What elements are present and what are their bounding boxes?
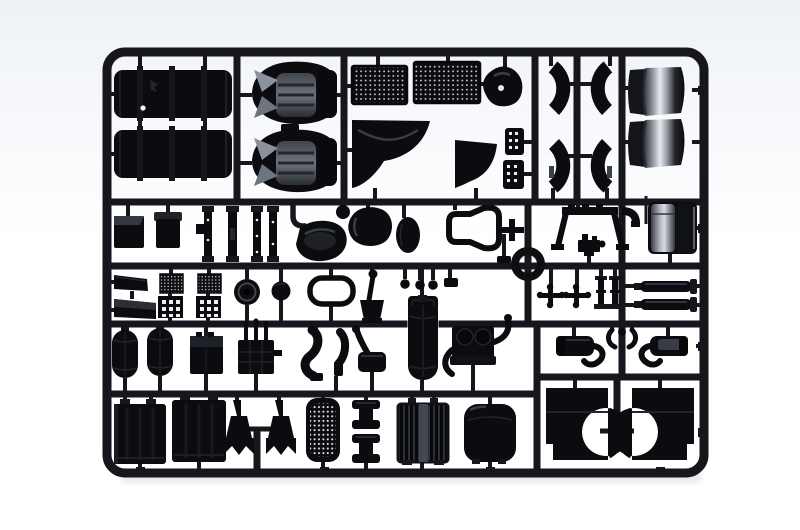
control-knobs: control-knob xyxy=(400,278,458,290)
wheel-rim-2: wheel-rim xyxy=(352,434,380,463)
hub-cap: hub-cap xyxy=(272,282,291,301)
mesh-grille-small: mesh-grille-panel xyxy=(352,66,407,104)
step-plates: step-plate xyxy=(158,274,221,318)
wind-deflector-2: wind-deflector xyxy=(628,119,685,168)
spring-hanger-2: spring-hanger xyxy=(266,400,296,455)
pedal-plate-1: pedal-plate xyxy=(505,128,524,155)
air-horn-cover: air-horn-cover xyxy=(293,202,350,261)
lever-slats: lever-slat xyxy=(196,206,279,262)
mud-flap-2: mud-flap xyxy=(114,299,156,319)
sprue-photo: Black injection-molded plastic model-kit… xyxy=(0,0,800,530)
air-filter-box: air-filter-box xyxy=(646,196,697,254)
muffler-left: muffler xyxy=(556,336,603,365)
exhaust-pipe-1: exhaust-pipe xyxy=(305,330,323,381)
intake-grille: intake-grille xyxy=(306,398,340,462)
exhaust-pipe-2: exhaust-pipe xyxy=(334,332,345,376)
gear-lever: gear-lever xyxy=(360,270,384,324)
cab-corner-panel: cab-corner-panel xyxy=(483,66,522,106)
ribbed-radiator: ribbed-radiator xyxy=(398,398,448,465)
radiator-panel-2: radiator-panel xyxy=(172,395,226,462)
storage-box: storage-box xyxy=(464,404,516,464)
equipment-box-1: equipment-box xyxy=(114,216,144,248)
air-tank-1: air-tank xyxy=(112,324,138,378)
brake-drum: brake-drum xyxy=(234,279,260,305)
fuel-tank-lower: fuel-tank xyxy=(114,126,232,181)
pedal-plate-2: pedal-plate xyxy=(503,160,524,189)
seat-bracket xyxy=(281,124,299,133)
fuel-tank-upper: fuel-tank xyxy=(114,66,232,121)
seat-back-frame: seat-back-frame xyxy=(449,208,524,249)
mesh-grille-large: mesh-grille-panel xyxy=(414,62,480,103)
mud-flap-1: mud-flap xyxy=(114,275,148,291)
brake-pedal: brake-pedal xyxy=(352,325,386,372)
chassis-stanchions: chassis-stanchion xyxy=(594,276,622,309)
fender-small: fender-panel xyxy=(455,140,497,188)
window-gasket: window-gasket xyxy=(310,278,353,304)
compressor-unit: compressor-unit xyxy=(578,234,606,256)
fender-large: fender-panel xyxy=(352,120,430,188)
exhaust-stack-1: exhaust-stack xyxy=(634,279,697,294)
cab-seat-top: cab-seat xyxy=(252,62,337,124)
air-tank-2: air-tank xyxy=(147,322,173,376)
spring-hanger-1: spring-hanger xyxy=(224,400,254,455)
armrest-pad-1: armrest-pad xyxy=(348,207,392,246)
equipment-box-2: equipment-box xyxy=(154,212,182,248)
wheel-rim-1: wheel-rim xyxy=(352,400,380,429)
universal-joints: universal-joint xyxy=(537,284,591,308)
photo-stage: Black injection-molded plastic model-kit… xyxy=(0,0,800,530)
muffler-right: muffler xyxy=(641,336,688,365)
cab-side-panel-right: cab-side-panel xyxy=(610,388,694,460)
radiator-panel-1: radiator-panel xyxy=(114,399,166,464)
exhaust-stack-2: exhaust-stack xyxy=(634,297,697,312)
battery-box: battery-box xyxy=(190,332,223,374)
air-reservoir: air-reservoir xyxy=(408,295,438,380)
armrest-pad-2: armrest-pad xyxy=(396,217,420,253)
cab-seat-bottom: cab-seat xyxy=(252,130,337,192)
wind-deflector-1: wind-deflector xyxy=(628,67,685,116)
